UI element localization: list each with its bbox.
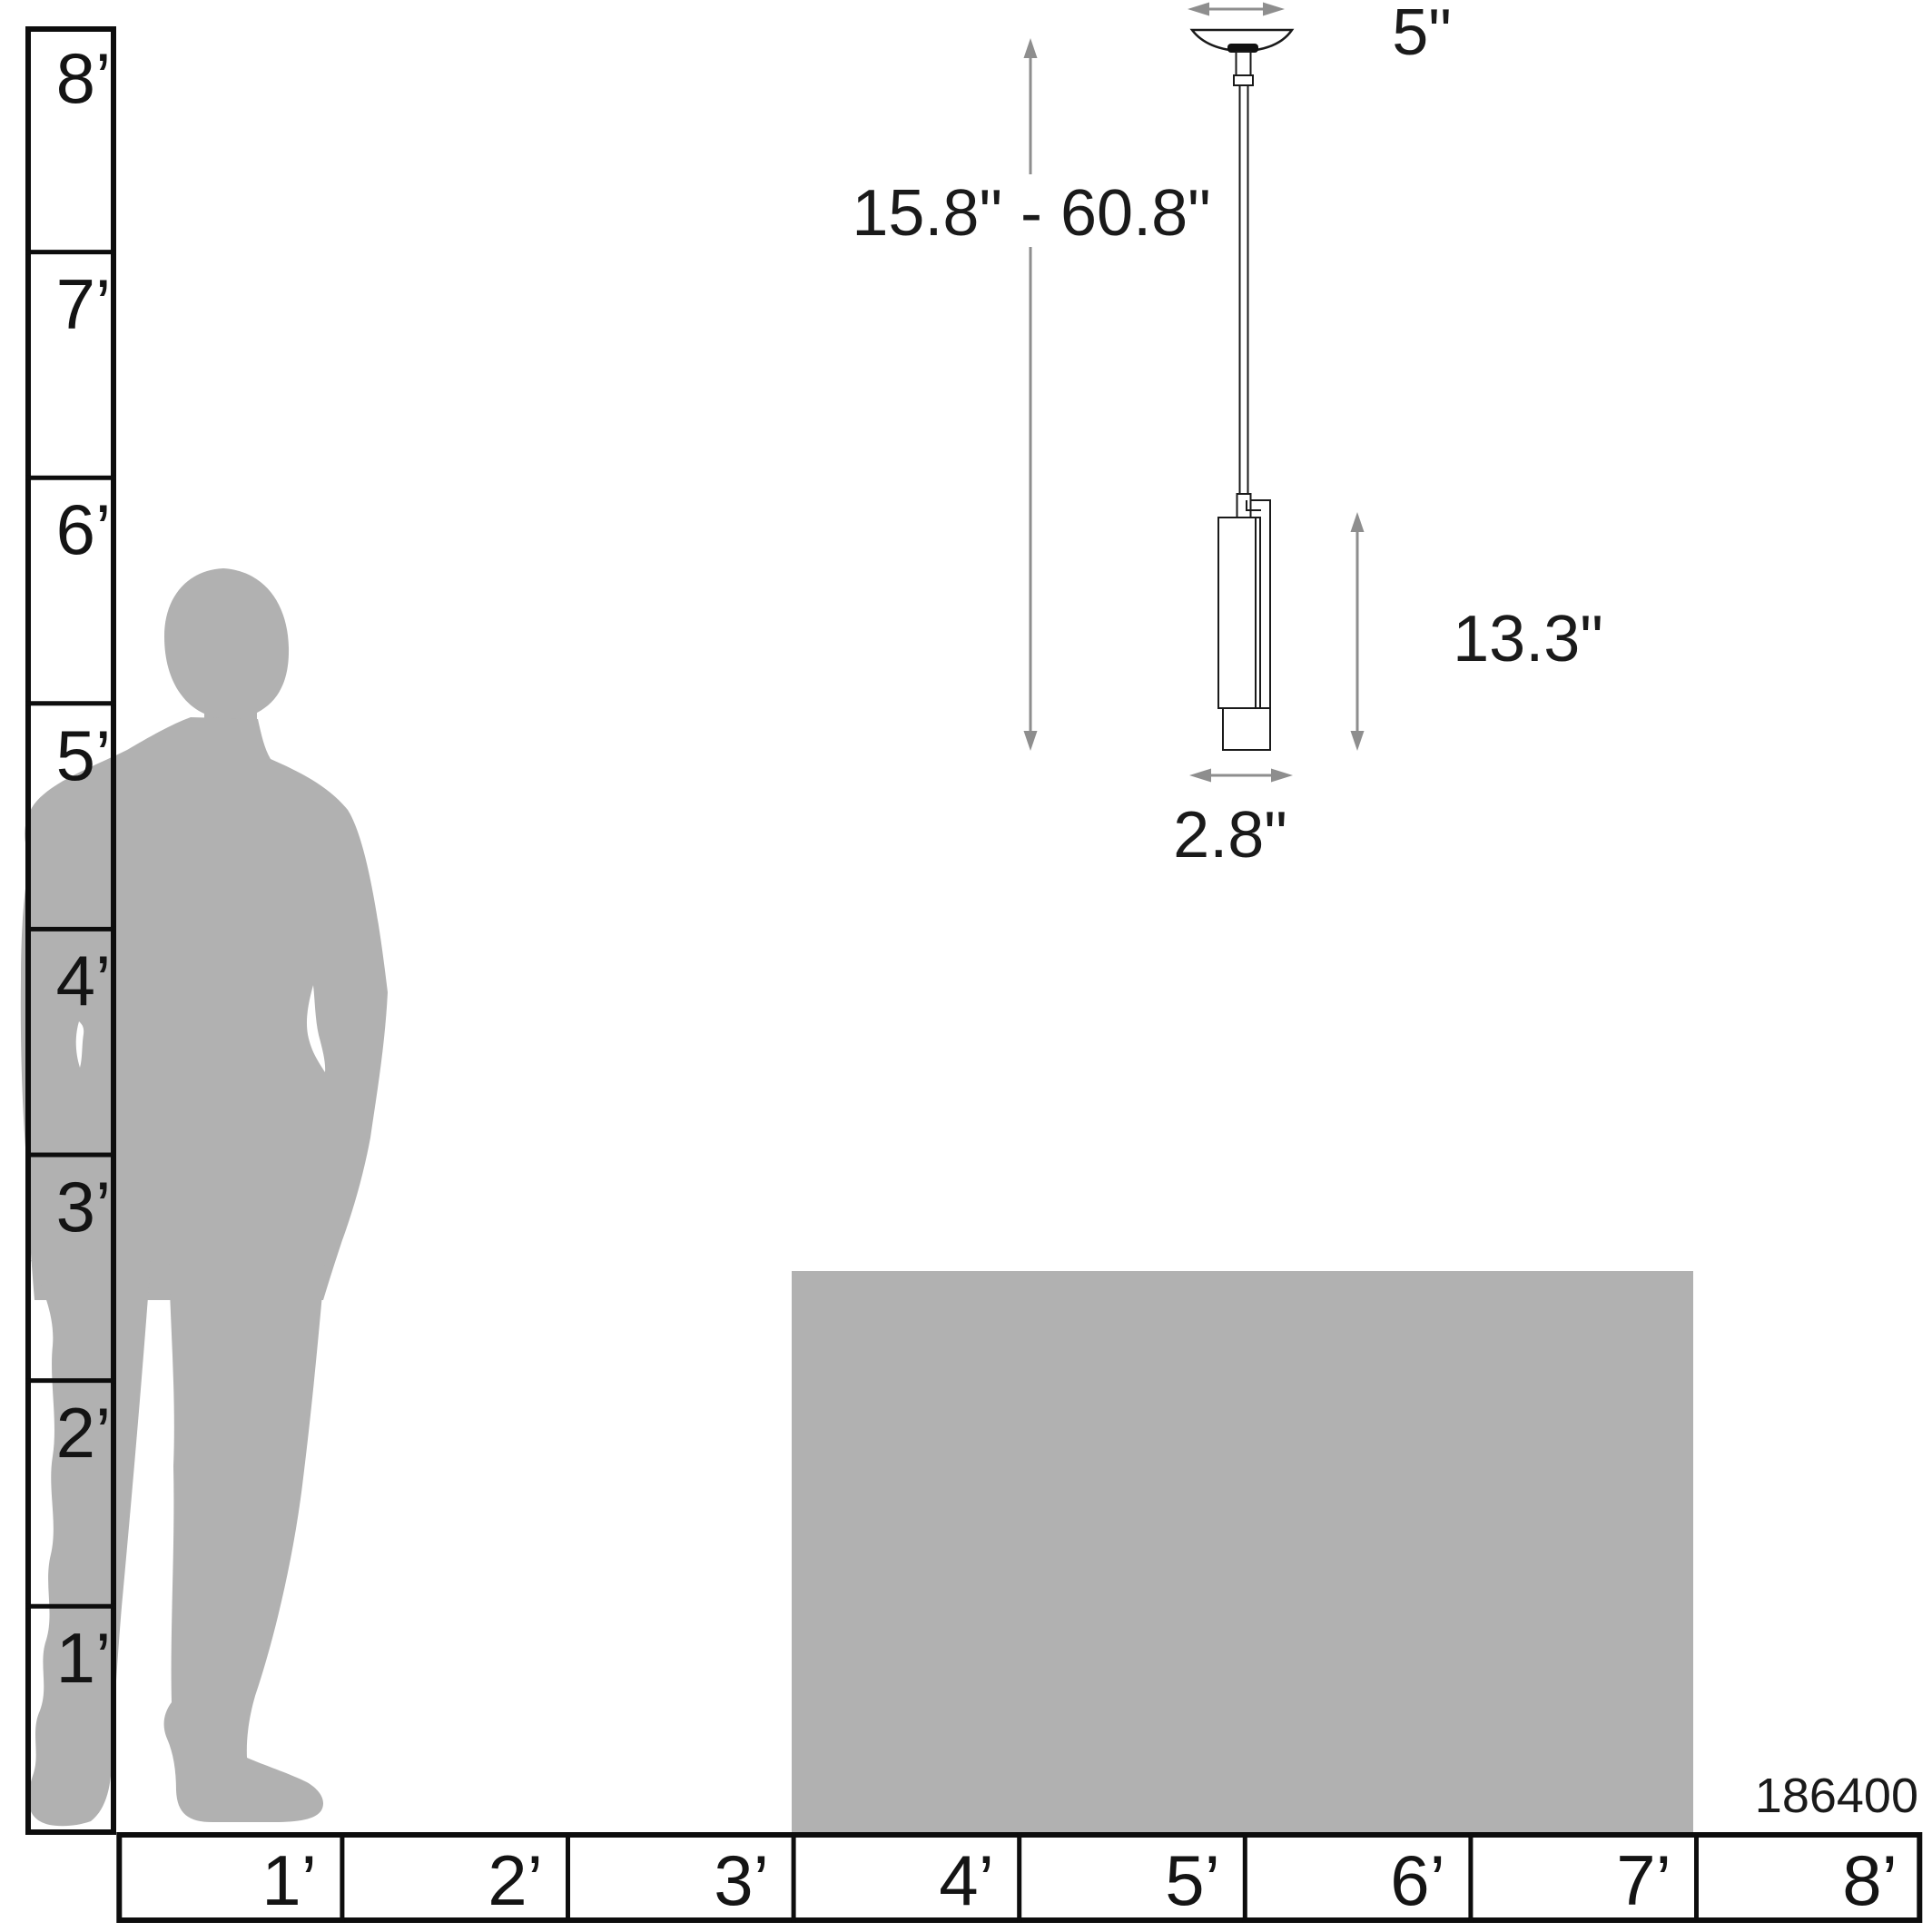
horizontal-ruler-label: 5’ [1020,1845,1246,1916]
vertical-ruler-label: 6’ [25,494,129,565]
body-height-label: 13.3" [1392,606,1664,672]
horizontal-ruler-label: 7’ [1471,1845,1697,1916]
pendant-stem-rod [1240,85,1248,494]
body-width-arrow [1189,769,1293,783]
pendant-collar-flange [1234,75,1253,85]
dimension-arrows [1024,3,1365,783]
vertical-ruler-label: 3’ [25,1171,129,1242]
horizontal-ruler-label: 4’ [793,1845,1020,1916]
vertical-ruler-label: 4’ [25,945,129,1016]
man-head [164,568,289,719]
pendant-rod-joint [1237,494,1251,517]
pendant-body [1218,517,1260,708]
height-range-label: 15.8" - 60.8" [850,181,1213,246]
pendant-lower-cylinder [1223,708,1270,750]
man-left-leg [28,1260,151,1826]
vertical-ruler-label: 8’ [25,43,129,113]
vertical-ruler-label: 5’ [25,720,129,791]
product-code: 186400 [1691,1771,1918,1820]
body-width-label: 2.8" [1139,803,1321,868]
horizontal-ruler-label: 3’ [568,1845,794,1916]
vertical-ruler-label: 2’ [25,1397,129,1468]
canopy-width-label: 5" [1331,0,1513,65]
horizontal-ruler-label: 8’ [1697,1845,1923,1916]
horizontal-ruler-label: 6’ [1245,1845,1471,1916]
table-silhouette [792,1271,1693,1832]
scale-diagram: 8’ 7’ 6’ 5’ 4’ 3’ 2’ 1’ 1’ 2’ 3’ 4’ 5’ 6… [0,0,1932,1932]
vertical-ruler-label: 1’ [25,1622,129,1693]
diagram-canvas [0,0,1932,1932]
pendant-collar [1237,52,1251,75]
body-height-arrow [1351,512,1365,751]
vertical-ruler-label: 7’ [25,269,129,340]
horizontal-ruler-label: 1’ [116,1845,342,1916]
man-right-leg [164,1264,325,1822]
height-range-arrow [1024,38,1038,751]
canopy-width-arrow [1188,3,1285,16]
pendant-drawing [1192,30,1292,750]
horizontal-ruler-label: 2’ [342,1845,568,1916]
